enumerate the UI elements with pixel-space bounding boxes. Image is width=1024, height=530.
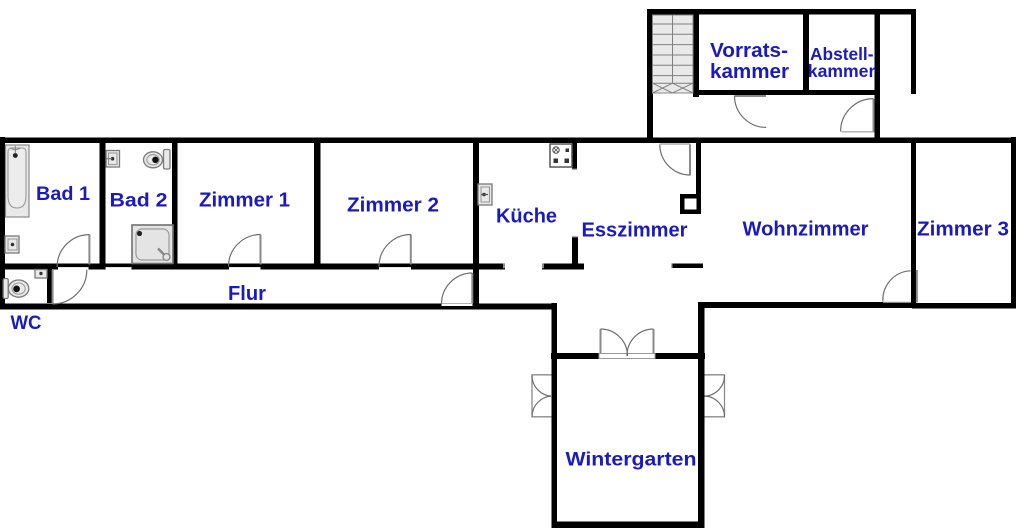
svg-text:Wintergarten: Wintergarten bbox=[566, 449, 697, 471]
svg-text:Küche: Küche bbox=[496, 206, 557, 228]
svg-text:Zimmer 2: Zimmer 2 bbox=[347, 195, 439, 217]
svg-text:WC: WC bbox=[11, 312, 42, 334]
svg-text:Esszimmer: Esszimmer bbox=[582, 220, 688, 242]
svg-text:Bad 1: Bad 1 bbox=[36, 183, 90, 205]
svg-text:Flur: Flur bbox=[228, 282, 266, 305]
svg-text:Wohnzimmer: Wohnzimmer bbox=[743, 219, 869, 241]
svg-text:Bad 2: Bad 2 bbox=[110, 191, 168, 212]
svg-text:kammer: kammer bbox=[710, 61, 789, 83]
svg-text:kammer: kammer bbox=[808, 61, 876, 81]
svg-text:Zimmer 3: Zimmer 3 bbox=[917, 219, 1009, 241]
svg-text:Vorrats-: Vorrats- bbox=[710, 40, 788, 62]
svg-text:Zimmer 1: Zimmer 1 bbox=[199, 190, 290, 212]
